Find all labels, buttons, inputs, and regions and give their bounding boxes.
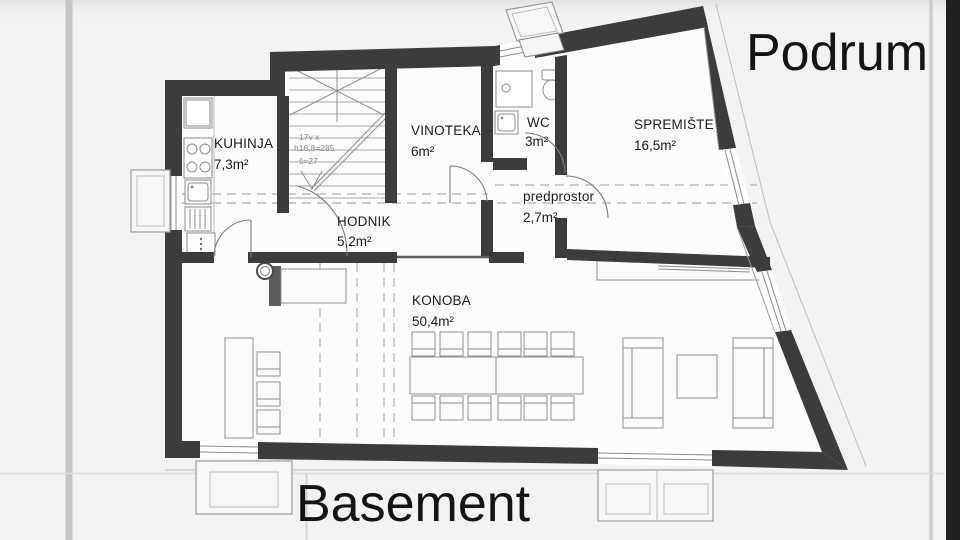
plan-title-podrum: Podrum xyxy=(746,24,928,82)
label-spremiste-area: 16,5m² xyxy=(634,138,677,153)
sofa-right xyxy=(733,338,773,428)
stair-annotation-2: h16,8=285 xyxy=(294,143,335,153)
basement-floor-plan-page: 17v x h16,8=285 š=27 xyxy=(0,0,960,540)
right-dark-border xyxy=(946,0,960,540)
window-bottom-right xyxy=(598,448,712,466)
wall-wc-bottom xyxy=(493,158,527,170)
floor-plan-drawing: 17v x h16,8=285 š=27 xyxy=(0,0,960,540)
dining-table-right xyxy=(496,357,583,394)
sofa-left xyxy=(623,338,663,428)
light-shaft-bottom-right xyxy=(598,470,713,521)
plan-title-basement: Basement xyxy=(296,475,531,533)
coffee-table xyxy=(677,355,717,398)
wall-kitchen-top xyxy=(165,80,285,96)
column-icon xyxy=(257,263,273,279)
label-wc-area: 3m² xyxy=(525,134,549,149)
label-vinoteka-area: 6m² xyxy=(411,144,435,159)
wall-wc-right xyxy=(555,55,567,175)
wall-vinoteka-right-upper xyxy=(481,66,493,162)
label-predprostor-area: 2,7m² xyxy=(523,210,558,225)
label-hodnik-name: HODNIK xyxy=(337,214,391,229)
label-predprostor-name: predprostor xyxy=(523,189,595,204)
wall-hodnik-bottom xyxy=(248,252,397,263)
label-hodnik-area: 5,2m² xyxy=(337,234,372,249)
wall-stair-right xyxy=(385,66,397,203)
wall-left-lower xyxy=(165,230,182,445)
wall-bottom-1 xyxy=(165,441,200,458)
label-wc-name: WC xyxy=(527,115,550,130)
stair-annotation-1: 17v x xyxy=(299,132,320,142)
label-spremiste-name: SPREMIŠTE xyxy=(634,117,714,132)
stove-icon xyxy=(184,138,212,178)
wall-top-slant-a xyxy=(495,45,500,66)
dining-table-left xyxy=(410,357,496,394)
label-kuhinja-name: KUHINJA xyxy=(214,136,273,151)
label-konoba-area: 50,4m² xyxy=(412,314,455,329)
shower-icon xyxy=(496,71,532,107)
stair-annotation-3: š=27 xyxy=(299,156,318,166)
window-bottom-left xyxy=(200,441,258,459)
side-table xyxy=(225,338,253,438)
wall-kitchen-bottom xyxy=(182,252,214,263)
wall-kitchen-right xyxy=(277,96,289,213)
top-shade xyxy=(0,0,960,20)
label-konoba-name: KONOBA xyxy=(412,293,471,308)
kitchen-fixtures xyxy=(184,96,215,255)
label-vinoteka-name: VINOTEKA xyxy=(411,123,481,138)
label-kuhinja-area: 7,3m² xyxy=(214,157,249,172)
dishwasher-icon xyxy=(185,207,211,231)
wall-predprostor-bottom xyxy=(489,252,524,263)
bar-counter xyxy=(281,269,346,303)
wall-vinoteka-right-lower xyxy=(481,200,493,257)
